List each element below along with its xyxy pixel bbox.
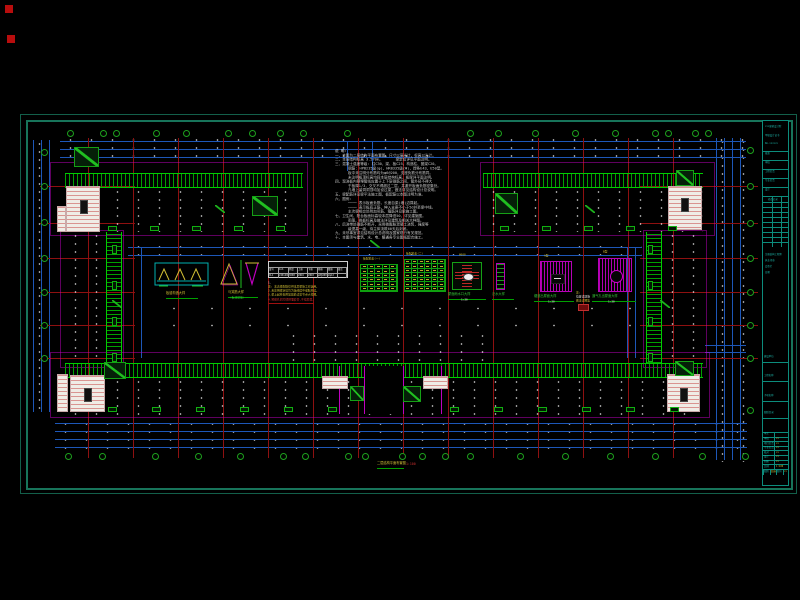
dimension-line-h (128, 255, 642, 256)
grid-bubble (517, 453, 524, 460)
beam-mark (450, 407, 459, 412)
grid-bubble (467, 453, 474, 460)
strip-text-text: ×× (776, 451, 779, 454)
grid-bubble (65, 453, 72, 460)
grid-bubble (742, 453, 749, 460)
strip-text: 日期 (765, 271, 781, 281)
grid-bubble (41, 149, 48, 156)
strip-text-text: 专业负责 (764, 446, 774, 449)
rebar-cell-mark (433, 261, 436, 262)
rebar-cell-mark (384, 284, 387, 285)
beam-mark (648, 317, 653, 326)
mid-note-red-box (578, 304, 589, 311)
entrance-jamb-line (364, 366, 365, 414)
rebar-cell-mark (406, 270, 409, 271)
grid-bubble (442, 453, 449, 460)
rebar-cell-mark (433, 288, 436, 289)
roof-slope-arrow (104, 362, 126, 379)
flue-detail (540, 261, 572, 292)
strip-text-text: 批准 (765, 152, 770, 155)
beam-table-cell-text: b×h (279, 268, 282, 271)
grid-bubble (652, 453, 659, 460)
beam-mark (648, 353, 653, 362)
grid-bubble (747, 407, 754, 414)
grid-bubble (67, 130, 74, 137)
strip-text-text: 注册结构工程师 (765, 253, 782, 256)
grid-bubble (41, 219, 48, 226)
grid-bubble (237, 453, 244, 460)
strip-text-text: 设计 (765, 188, 770, 191)
beam-table-cell: 2Φ18 (308, 273, 318, 279)
grid-bubble (345, 453, 352, 460)
strip-text-text: 比例 (764, 465, 769, 468)
rebar-cell-mark (363, 288, 366, 289)
strip-text-text: 建设单位 (764, 355, 774, 358)
grid-bubble (344, 130, 351, 137)
rebar-cell-mark (433, 266, 436, 267)
wing-body (662, 232, 703, 363)
rebar-cell-mark (433, 275, 436, 276)
grid-bubble (747, 355, 754, 362)
beam-mark (500, 226, 509, 231)
beam-table-cell: 240×400 (279, 273, 289, 279)
vent-core-circle (610, 270, 623, 283)
strip-text-text: 执业印章 (765, 259, 775, 262)
strip-text-text: 设计 (764, 455, 769, 458)
grid-bubble (362, 453, 369, 460)
rebar-cell-mark (370, 279, 373, 280)
roof-slope-arrow (74, 147, 99, 167)
beam-table-cell: φ8@200 (318, 273, 328, 279)
rebar-cell-mark (440, 266, 443, 267)
grid-bubble (467, 130, 474, 137)
flashing-detail (496, 263, 505, 290)
rebar-cell-mark (391, 279, 394, 280)
grid-bubble (562, 453, 569, 460)
rebar-cell-mark (384, 271, 387, 272)
rebar-cell-mark (391, 266, 394, 267)
rebar-table-cell (361, 287, 368, 291)
rebar-cell-mark (440, 261, 443, 262)
strip-text-text: 审定 (764, 432, 769, 435)
beam-table-cell-text: 上筋 (298, 268, 301, 271)
strip-text-text: 专业负责 (765, 179, 775, 182)
beam-table-cell (338, 273, 348, 279)
strip-text-text: ×× (776, 455, 779, 458)
rebar-cell-mark (413, 261, 416, 262)
grid-bubble (399, 453, 406, 460)
strip-text-text: 工程名称 (764, 374, 774, 377)
strip-text-text: 审核 (764, 437, 769, 440)
beam-table-cell-text: 3600 (289, 274, 292, 277)
strip-text-text: ×××建筑设计院 (765, 125, 781, 128)
beam-mark (670, 407, 679, 412)
rebar-cell-mark (377, 271, 380, 272)
beam-mark (626, 407, 635, 412)
slope-tick (112, 300, 122, 308)
vent-label: 通气孔出屋面大样 (592, 294, 610, 298)
dimension-line-h (55, 439, 747, 440)
beam-table-cell-text: 备注 (338, 268, 341, 271)
beam-mark (112, 353, 117, 362)
dimension-line-h (128, 247, 642, 248)
rebar-cell-mark (384, 279, 387, 280)
strip-divider (763, 232, 788, 233)
strip-divider (763, 217, 788, 218)
dimension-line-v (635, 247, 636, 358)
beam-mark (582, 407, 591, 412)
rebar-cell-mark (363, 275, 366, 276)
beam-note-red-wrap: 4.预留孔洞均须预埋套管,不得后凿。 (268, 298, 314, 304)
rebar-cell-mark (426, 270, 429, 271)
beam-mark (648, 245, 653, 254)
strip-text-text: 项目负责 (764, 442, 774, 445)
rebar-table2 (404, 259, 446, 292)
grid-bubble (495, 130, 502, 137)
grid-bubble (41, 255, 48, 262)
roof-drain-scale: 1:20 (461, 298, 480, 308)
rebar-cell-mark (363, 266, 366, 267)
stair-core-mark (84, 388, 92, 402)
rebar-cell-mark (370, 271, 373, 272)
rebar-table-cell (383, 287, 390, 291)
rebar-cell-mark (377, 288, 380, 289)
rev-col-line (772, 197, 773, 247)
strip-text-text: 图纸目录 (764, 411, 774, 414)
chair-bar-detail (218, 258, 264, 290)
beam-mark (538, 407, 547, 412)
beam-mark (494, 407, 503, 412)
rebar-cell-mark (440, 279, 443, 280)
beam-table-cell: XL1 (269, 273, 279, 279)
wing-body (65, 232, 106, 363)
drawing-title-wrap: 二层结构平面布置图 (377, 461, 404, 469)
beam-table: 现 浇 梁 表梁号b×h跨度上筋下筋箍筋腰筋备注XL1240×40036002Φ… (268, 261, 348, 278)
grid-bubble (652, 130, 659, 137)
dimension-line-h (55, 447, 747, 448)
grid-bubble (277, 130, 284, 137)
grid-bubble (280, 453, 287, 460)
rebar-cell-mark (406, 266, 409, 267)
stair-block (57, 206, 66, 232)
grid-bubble (41, 289, 48, 296)
beam-table-cell-text: 梁号 (269, 268, 272, 271)
beam-table-cell-text: 跨度 (289, 268, 292, 271)
rebar-table-cell (405, 287, 412, 291)
strip-text-text: 结施 (771, 470, 776, 473)
beam-mark (192, 226, 201, 231)
grid-bubble (607, 453, 614, 460)
beam-mark (284, 407, 293, 412)
rebar-cell-mark (406, 261, 409, 262)
strip-text-text: 甲级设计证书 (765, 134, 779, 137)
chair-bar-label: 马凳筋大样 (228, 290, 240, 294)
beam-table-cell: 3600 (289, 273, 299, 279)
rebar-cell-mark (391, 275, 394, 276)
rebar-cell-mark (420, 261, 423, 262)
cad-sheet-canvas: 说 明:一、本图为二层结构平面布置图，尺寸以毫米计，标高以米计。二、本层结构标高… (0, 0, 800, 600)
rebar-cell-mark (433, 270, 436, 271)
entrance-jamb-line (339, 366, 340, 414)
rebar-cell-mark (370, 266, 373, 267)
wing-hatch-band (65, 173, 303, 188)
rebar-table1 (360, 264, 398, 292)
grid-bubble (41, 355, 48, 362)
roof-slope-arrow (403, 386, 421, 402)
stair-block (423, 376, 448, 389)
grid-bubble (612, 130, 619, 137)
beam-table-cell-text: 240×400 (279, 274, 282, 277)
dimension-line-v (41, 140, 42, 412)
beam-mark (542, 226, 551, 231)
beam-note-3: 2.未注明梁定位均为轴线居中或贴柱边。 (268, 289, 319, 292)
beam-table-cell: 2φ12 (328, 273, 338, 279)
grid-bubble (699, 453, 706, 460)
grid-bubble (532, 130, 539, 137)
grid-bubble (300, 130, 307, 137)
stair-core-mark (680, 388, 688, 402)
beam-mark (626, 226, 635, 231)
rebar-table-cell (412, 287, 419, 291)
rebar-table-cell (390, 287, 397, 291)
beam-mark (276, 226, 285, 231)
rebar-cell-mark (433, 284, 436, 285)
strip-text-text: 工程负责 (765, 170, 775, 173)
beam-table-cell-text: 下筋 (308, 268, 311, 271)
strip-text-text: 图号 (777, 470, 782, 473)
beam-mark (112, 245, 117, 254)
beam-mark (108, 226, 117, 231)
slope-tick (585, 205, 595, 213)
drawing-scale: 1:100 (406, 462, 430, 472)
rebar-cell-mark (426, 284, 429, 285)
slab-joint-label: 板缝构造大样 (166, 291, 179, 295)
chair-bar-sublabel: (板双层筋) (230, 296, 272, 306)
strip-divider (763, 242, 788, 243)
strip-divider (763, 237, 788, 238)
rebar-cell-mark (413, 275, 416, 276)
vent-scale: 1:20 (608, 300, 627, 310)
rebar-cell-mark (391, 284, 394, 285)
rebar-cell-mark (413, 279, 416, 280)
corridor-band (283, 332, 497, 363)
slope-tick (215, 205, 225, 213)
rebar-cell-mark (426, 261, 429, 262)
strip-text-text: ×× (776, 446, 779, 449)
rebar-cell-mark (370, 275, 373, 276)
rebar-cell-mark (377, 279, 380, 280)
flue-core (551, 274, 565, 284)
grid-bubble (302, 453, 309, 460)
beam-note-red: 4.预留孔洞均须预埋套管,不得后凿。 (268, 298, 284, 301)
roof-slope-arrow (676, 170, 694, 186)
roof-drain-label: 屋面雨水口大样 (448, 292, 463, 296)
grid-bubble (195, 453, 202, 460)
beam-mark (648, 281, 653, 290)
strip-divider (763, 202, 788, 203)
corner-red-square (5, 5, 13, 13)
rebar-cell-mark (391, 288, 394, 289)
rebar-cell-mark (377, 275, 380, 276)
rebar-cell-mark (420, 288, 423, 289)
dimension-line-h (55, 431, 747, 432)
slab-joint-detail (154, 260, 210, 290)
dimension-line-h (55, 423, 747, 424)
beam-mark (196, 407, 205, 412)
rebar-cell-mark (384, 288, 387, 289)
roof-slope-arrow (675, 361, 694, 376)
grid-bubble (249, 130, 256, 137)
beam-table-cell-text: φ8@200 (318, 274, 321, 277)
beam-table-cell-text: 2Φ16 (298, 274, 301, 277)
beam-mark (152, 407, 161, 412)
grid-bubble (747, 220, 754, 227)
rebar-cell-mark (420, 275, 423, 276)
rebar-cell-mark (363, 284, 366, 285)
rebar-cell-mark (413, 284, 416, 285)
rebar-cell-mark (406, 279, 409, 280)
grid-bubble (113, 130, 120, 137)
strip-text-text: 制图 (764, 460, 769, 463)
strip-divider (763, 227, 788, 228)
entrance-gap (364, 366, 403, 414)
rebar-table-cell (375, 287, 382, 291)
beam-table-cell-text: 2φ12 (328, 274, 331, 277)
beam-mark (584, 226, 593, 231)
rebar-cell-mark (420, 266, 423, 267)
beam-mark (150, 226, 159, 231)
strip-text-text: ×× (784, 470, 787, 473)
strip-text-text: ×× (776, 437, 779, 440)
beam-mark (108, 407, 117, 412)
rebar-cell-mark (420, 279, 423, 280)
rebar-cell-mark (426, 266, 429, 267)
beam-mark (668, 226, 677, 231)
grid-bubble (747, 289, 754, 296)
rev-col-line (781, 197, 782, 247)
roof-slope-arrow (350, 386, 364, 401)
strip-text-text: 会签栏 (765, 265, 772, 268)
slope-tick (370, 240, 380, 248)
rebar-cell-mark (406, 275, 409, 276)
beam-mark (112, 317, 117, 326)
rebar-cell-mark (413, 266, 416, 267)
dimension-line-v (141, 247, 142, 358)
grid-bubble (99, 453, 106, 460)
rebar-cell-mark (440, 275, 443, 276)
flue-core-text (554, 278, 561, 279)
grid-bubble (183, 130, 190, 137)
beam-table-cell-text: 箍筋 (318, 268, 321, 271)
beam-table-cell-text: XL1 (269, 274, 272, 277)
strip-text: 建设单位 (764, 355, 796, 365)
flashing-label: 泛水大样 (492, 292, 501, 296)
dimension-line-v (33, 140, 34, 412)
strip-text-text: 图别 (764, 470, 769, 473)
drain-ellipse (463, 273, 474, 281)
grid-bubble (100, 130, 107, 137)
rebar-cell-mark (426, 275, 429, 276)
rebar-cell-mark (363, 271, 366, 272)
roof-drain-detail (452, 262, 482, 290)
grid-bubble (225, 130, 232, 137)
slab-joint-label-wrap: 板缝构造大样 (166, 291, 198, 299)
beam-mark (234, 226, 243, 231)
rebar-cell-mark (440, 270, 443, 271)
rebar-table-cell (418, 287, 425, 291)
rebar-cell-mark (370, 284, 373, 285)
roof-slope-arrow (252, 196, 278, 216)
grid-bubble (153, 130, 160, 137)
strip-divider (763, 207, 788, 208)
rebar-cell-mark (406, 288, 409, 289)
beam-mark (112, 281, 117, 290)
strip-text: 子项名称 (764, 394, 796, 404)
beam-note-1: 1. (268, 281, 271, 284)
grid-bubble (41, 183, 48, 190)
vent-detail (598, 258, 632, 292)
strip-divider (763, 222, 788, 223)
beam-note-2: 注: 本表梁配筋仅供本层梁施工时选用。 (268, 285, 319, 288)
strip-text-text: ×× (776, 460, 779, 463)
rebar-cell-mark (426, 279, 429, 280)
stair-block (57, 374, 68, 412)
slope-tick (660, 300, 670, 308)
rebar-table-cell (368, 287, 375, 291)
beam-table-cell: 2Φ16 (298, 273, 308, 279)
beam-table-cell-text: 腰筋 (328, 268, 331, 271)
grid-bubble (665, 130, 672, 137)
strip-text-text: 日期 (765, 271, 770, 274)
rebar-cell-mark (406, 284, 409, 285)
beam-mark (328, 407, 337, 412)
rebar-cell-mark (377, 266, 380, 267)
grid-bubble (747, 322, 754, 329)
rebar-cell-mark (384, 275, 387, 276)
title-block-strip: ×××建筑设计院甲级设计证书No.××××××批准审核工程负责专业负责设计修改记… (762, 120, 789, 486)
rebar-cell-mark (426, 288, 429, 289)
rebar-cell-mark (433, 279, 436, 280)
strip-text: 图纸目录 (764, 411, 796, 421)
grid-bubble (152, 453, 159, 460)
rebar-table-cell (432, 287, 439, 291)
rebar-cell-mark (440, 284, 443, 285)
flashing-label-wrap: 泛水大样 (492, 292, 514, 300)
rebar-cell-mark (413, 288, 416, 289)
plan-area (0, 0, 800, 600)
strip-text-text: 子项名称 (764, 394, 774, 397)
rebar-cell-mark (384, 266, 387, 267)
stair-core-mark (80, 200, 88, 214)
strip-text-text: 审核 (765, 161, 770, 164)
rebar-cell-mark (420, 270, 423, 271)
grid-bubble (747, 255, 754, 262)
strip-text-text: 1:100 (776, 465, 783, 468)
strip-divider (763, 196, 788, 197)
strip-text-text: 校对 (764, 451, 769, 454)
rebar-cell-mark (363, 279, 366, 280)
dim-text-specks (55, 420, 747, 450)
grid-bubble (41, 322, 48, 329)
strip-text: 工程名称 (764, 374, 796, 384)
grid-bubble (692, 130, 699, 137)
drawing-title: 二层结构平面布置图 (377, 461, 388, 465)
rebar-cell-mark (370, 288, 373, 289)
rebar-cell-mark (391, 271, 394, 272)
strip-divider (763, 212, 788, 213)
rebar-cell-mark (440, 288, 443, 289)
grid-bubble (572, 130, 579, 137)
